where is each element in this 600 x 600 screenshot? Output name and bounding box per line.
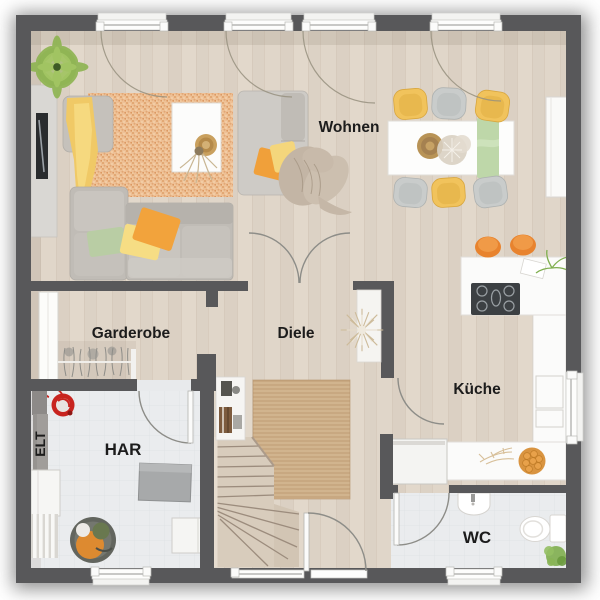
svg-text:HAR: HAR [105, 440, 142, 459]
svg-text:Küche: Küche [453, 381, 501, 398]
svg-text:WC: WC [463, 528, 491, 547]
svg-text:ELT: ELT [32, 431, 48, 457]
svg-text:Diele: Diele [277, 325, 314, 342]
svg-text:Wohnen: Wohnen [319, 119, 380, 136]
svg-text:Garderobe: Garderobe [92, 325, 171, 342]
